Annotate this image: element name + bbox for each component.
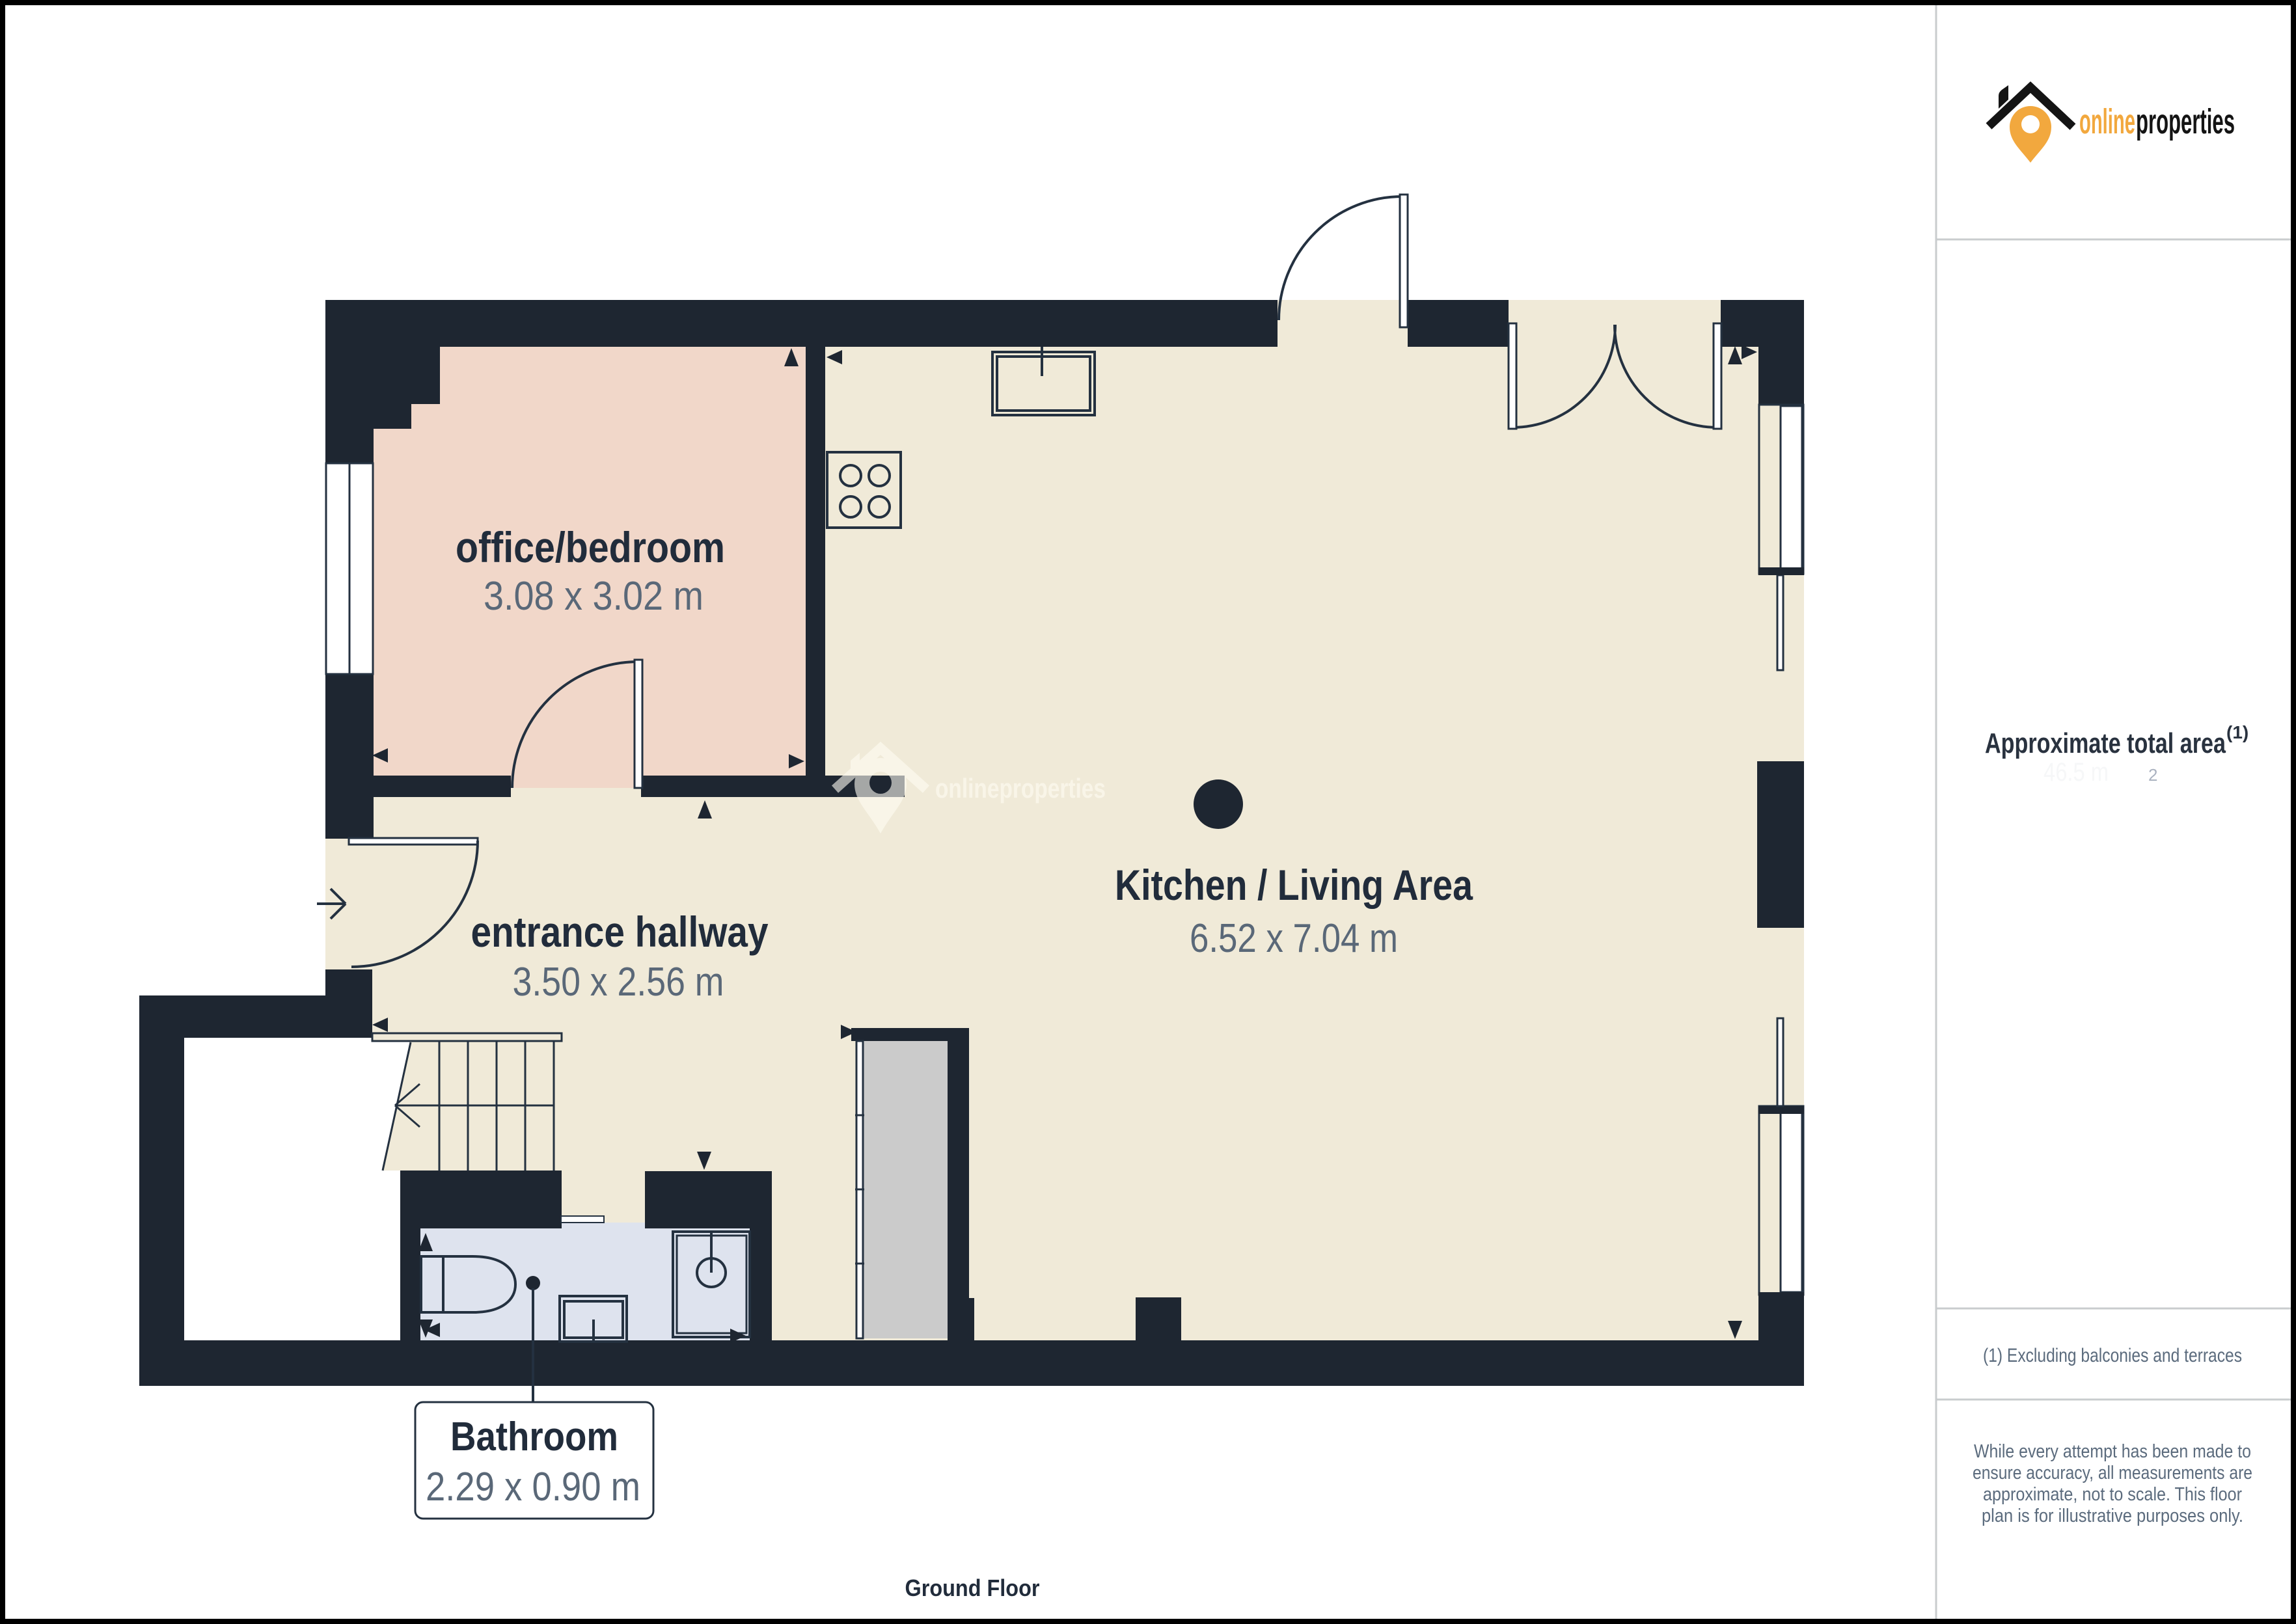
- svg-text:plan is for illustrative purpo: plan is for illustrative purposes only.: [1982, 1506, 2243, 1526]
- svg-text:46.5 m: 46.5 m: [2043, 758, 2109, 787]
- svg-text:6.52 x 7.04 m: 6.52 x 7.04 m: [1190, 916, 1398, 961]
- svg-text:ensure accuracy, all measureme: ensure accuracy, all measurements are: [1973, 1463, 2252, 1483]
- svg-text:2.29 x 0.90 m: 2.29 x 0.90 m: [426, 1465, 640, 1509]
- svg-text:2: 2: [2148, 765, 2157, 785]
- svg-text:While every attempt has been m: While every attempt has been made to: [1974, 1441, 2251, 1462]
- svg-text:(1) Excluding balconies and te: (1) Excluding balconies and terraces: [1983, 1345, 2242, 1366]
- svg-text:(1): (1): [2226, 722, 2248, 742]
- svg-text:3.08 x 3.02 m: 3.08 x 3.02 m: [484, 574, 704, 619]
- svg-text:Kitchen / Living Area: Kitchen / Living Area: [1115, 861, 1473, 909]
- svg-text:entrance hallway: entrance hallway: [471, 908, 769, 956]
- svg-text:properties: properties: [2136, 102, 2235, 141]
- svg-text:approximate, not to scale. Thi: approximate, not to scale. This floor: [1983, 1484, 2242, 1505]
- svg-text:Bathroom: Bathroom: [450, 1414, 618, 1459]
- svg-text:office/bedroom: office/bedroom: [456, 523, 725, 571]
- svg-text:Approximate total area: Approximate total area: [1985, 727, 2226, 759]
- svg-text:online: online: [2079, 102, 2135, 141]
- svg-text:onlineproperties: onlineproperties: [935, 773, 1106, 804]
- svg-text:Ground Floor: Ground Floor: [905, 1575, 1040, 1601]
- svg-text:3.50 x 2.56 m: 3.50 x 2.56 m: [513, 960, 724, 1005]
